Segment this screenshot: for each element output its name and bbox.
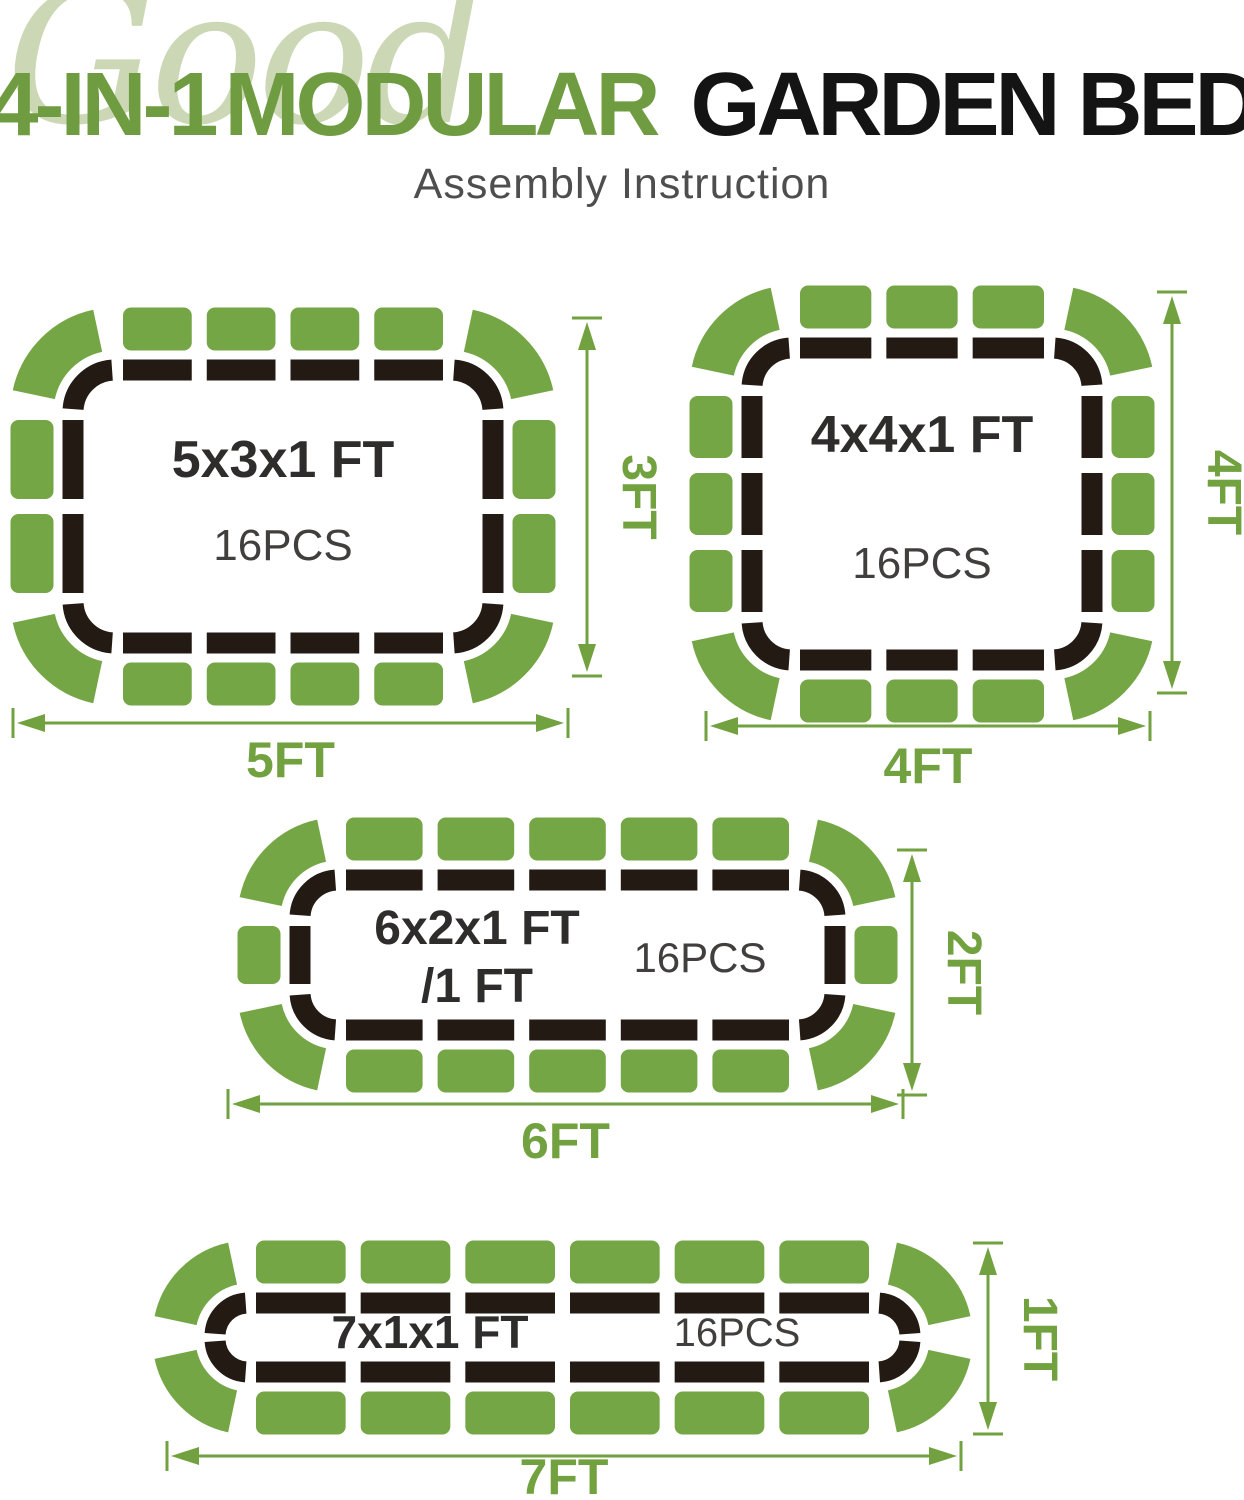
border-corner-dash [300,880,335,915]
panel-segment [465,1241,555,1284]
border-corner-dash [752,623,789,660]
width-dimension-label: 4FT [884,738,973,794]
panel-segment [779,1392,869,1435]
panel-segment [346,818,423,861]
width-dimension-label: 7FT [520,1449,609,1500]
page-title: 4-IN-1 MODULAR GARDEN BED [0,54,1244,157]
panel-segment [712,1050,789,1093]
border-corner-dash [1055,348,1092,385]
panel-segment [675,1392,765,1435]
panel-segment [438,1050,515,1093]
bed-size-label: 5x3x1 FT [172,431,395,489]
bed-diagram-3: 6x2x1 FT/1 FT16PCS2FT6FT [228,818,990,1170]
panel-segment [800,286,871,329]
title-part-garden-bed: GARDEN BED [690,54,1244,157]
border-corner-dash [215,1303,246,1334]
panel-segment [346,1050,423,1093]
bed-diagram-4: 7x1x1 FT16PCS1FT7FT [167,1241,1066,1500]
panel-segment [123,663,192,706]
border-corner-dash [1055,623,1092,660]
panel-segment [361,1392,451,1435]
panel-segment [886,680,957,723]
arrowhead-down-icon [903,1063,921,1091]
panel-segment [675,1241,765,1284]
page: Good 4-IN-1 MODULAR GARDEN BED Assembly … [0,0,1244,1500]
panel-segment [11,514,54,593]
panel-segment [690,550,733,612]
border-corner-dash [454,604,493,643]
panel-segment [529,818,606,861]
title-part-4in1: 4-IN-1 [0,54,215,157]
arrowhead-down-icon [979,1402,997,1430]
border-corner-dash [73,604,112,643]
panel-segment [690,473,733,535]
border-corner-dash [879,1303,910,1334]
arrowhead-down-icon [1163,661,1181,689]
panel-segment [570,1392,660,1435]
border-corner-dash [454,370,493,409]
panel-segment [570,1241,660,1284]
panel-segment [291,308,360,351]
height-dimension-label: 1FT [1013,1296,1066,1381]
arrowhead-up-icon [903,854,921,882]
subtitle: Assembly Instruction [0,160,1244,209]
panel-segment [529,1050,606,1093]
panel-segment [712,818,789,861]
arrowhead-right-icon [1118,717,1146,735]
arrowhead-right-icon [536,714,564,732]
panel-segment [256,1241,346,1284]
panel-segment [973,286,1044,329]
bed-pieces-label: 16PCS [213,521,352,570]
panel-segment [1112,473,1155,535]
panel-segment [690,396,733,458]
panel-segment [374,308,443,351]
panel-segment [621,818,698,861]
border-corner-dash [73,370,112,409]
panel-segment [1112,550,1155,612]
assembly-diagrams: 5x3x1 FT16PCS3FT5FT4x4x1 FT16PCS4FT4FT6x… [0,0,1244,1500]
panel-segment [361,1241,451,1284]
border-corner-dash [752,348,789,385]
panel-segment [207,308,276,351]
arrowhead-left-icon [171,1447,199,1465]
bed-diagram-2: 4x4x1 FT16PCS4FT4FT [690,286,1244,795]
width-dimension-label: 6FT [521,1113,610,1169]
arrowhead-down-icon [578,644,596,672]
panel-segment [800,680,871,723]
panel-segment [11,420,54,499]
arrowhead-up-icon [979,1247,997,1275]
panel-segment [438,818,515,861]
arrowhead-left-icon [710,717,738,735]
panel-segment [513,420,556,499]
arrowhead-left-icon [232,1095,260,1113]
panel-segment [973,680,1044,723]
arrowhead-up-icon [1163,296,1181,324]
arrowhead-up-icon [578,322,596,350]
arrowhead-right-icon [871,1095,899,1113]
height-dimension-label: 2FT [937,930,990,1015]
border-corner-dash [215,1341,246,1372]
title-part-modular: MODULAR [225,54,657,157]
height-dimension-label: 4FT [1197,450,1244,535]
border-corner-dash [879,1341,910,1372]
panel-segment [238,926,281,984]
bed-size-label: 4x4x1 FT [811,406,1034,464]
bed-pieces-label: 16PCS [674,1311,801,1355]
panel-segment [465,1392,555,1435]
arrowhead-right-icon [929,1447,957,1465]
panel-segment [779,1241,869,1284]
panel-segment [621,1050,698,1093]
height-dimension-label: 3FT [612,454,665,539]
panel-segment [855,926,898,984]
border-corner-dash [800,995,835,1030]
panel-segment [1112,396,1155,458]
panel-segment [374,663,443,706]
border-corner-dash [300,995,335,1030]
panel-segment [207,663,276,706]
bed-size-label: 6x2x1 FT [374,902,579,955]
bed-pieces-label: 16PCS [633,934,766,981]
arrowhead-left-icon [17,714,45,732]
panel-segment [256,1392,346,1435]
bed-diagram-1: 5x3x1 FT16PCS3FT5FT [11,308,666,789]
bed-size-label: 7x1x1 FT [332,1306,529,1358]
panel-segment [291,663,360,706]
border-corner-dash [800,880,835,915]
panel-segment [123,308,192,351]
width-dimension-label: 5FT [246,732,335,788]
panel-segment [513,514,556,593]
bed-size-label-line2: /1 FT [421,960,533,1013]
panel-segment [886,286,957,329]
bed-pieces-label: 16PCS [852,539,991,588]
